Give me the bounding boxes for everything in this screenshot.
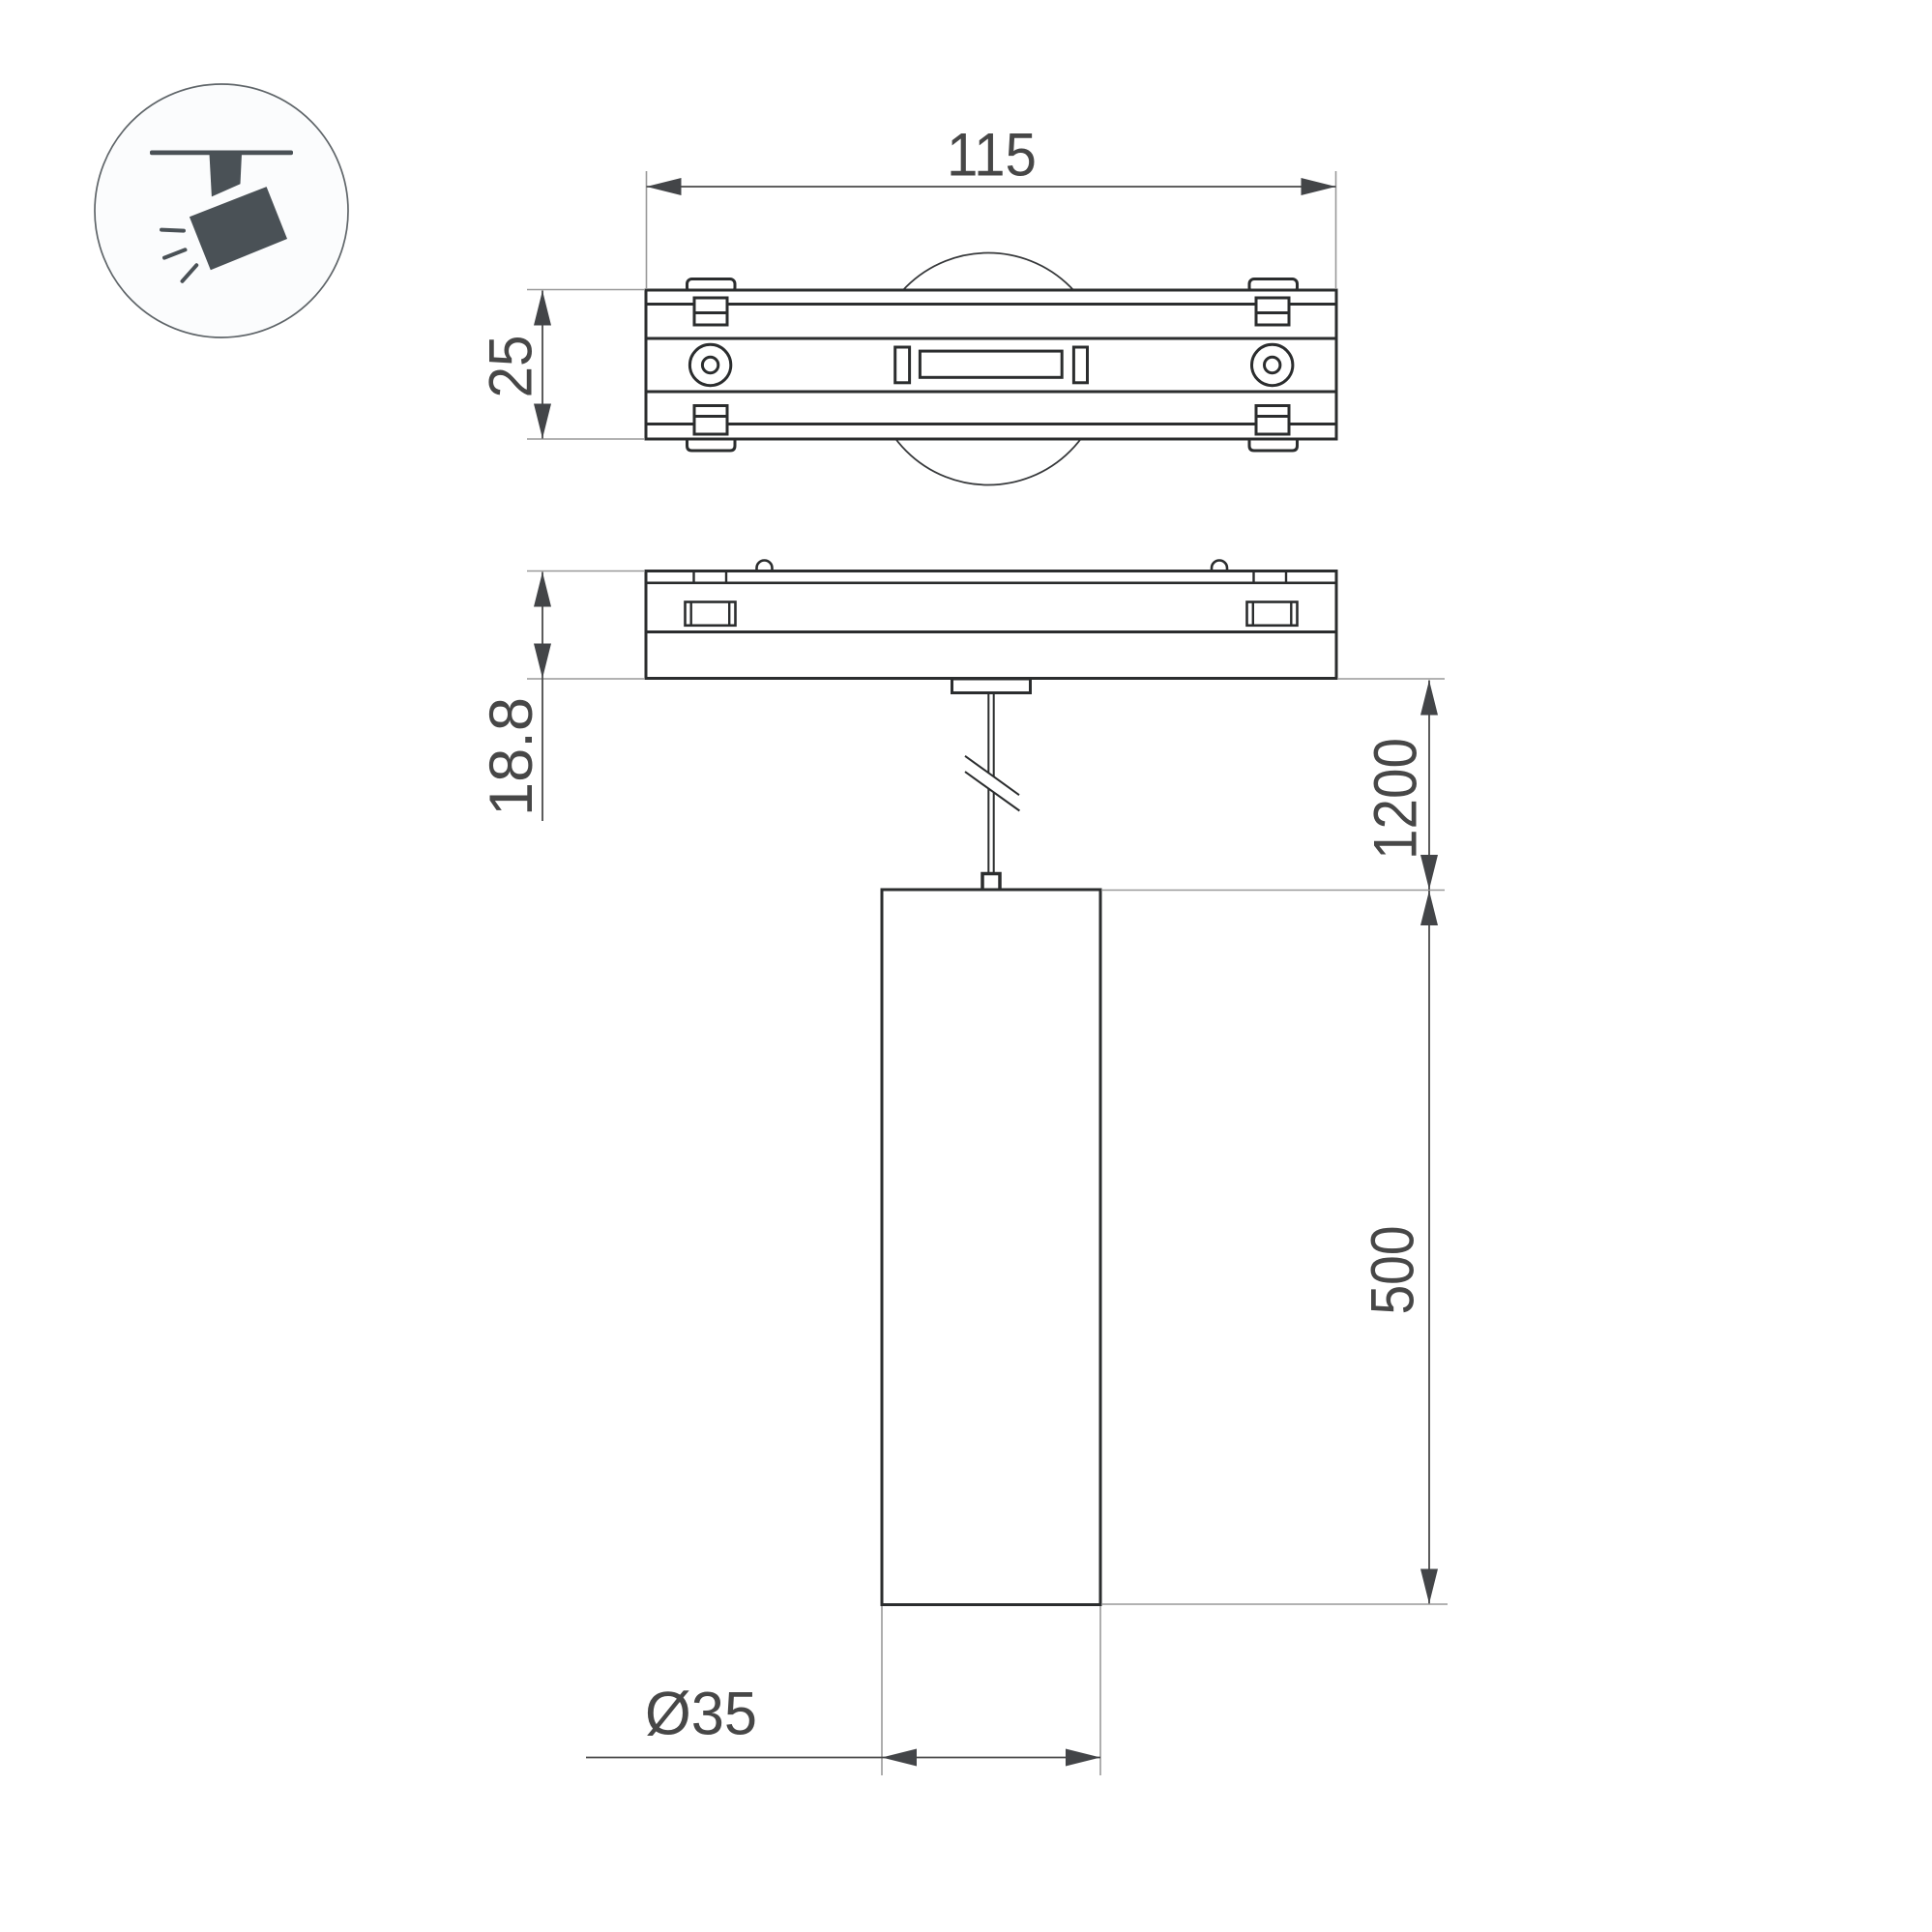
svg-text:25: 25 bbox=[478, 336, 545, 398]
svg-text:115: 115 bbox=[947, 122, 1037, 190]
svg-text:500: 500 bbox=[1360, 1226, 1427, 1315]
svg-text:Ø35: Ø35 bbox=[645, 1681, 757, 1748]
svg-text:18.8: 18.8 bbox=[478, 697, 545, 816]
svg-text:1200: 1200 bbox=[1362, 738, 1430, 860]
